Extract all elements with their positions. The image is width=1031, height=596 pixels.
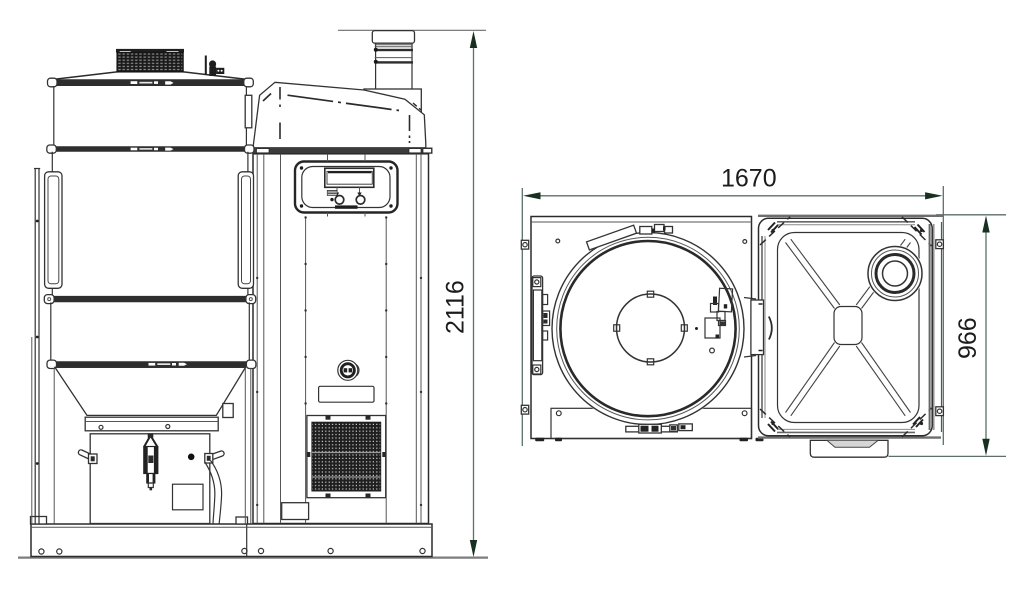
svg-text:966: 966: [954, 317, 982, 359]
svg-text:2116: 2116: [442, 280, 470, 334]
svg-text:1670: 1670: [721, 165, 777, 193]
